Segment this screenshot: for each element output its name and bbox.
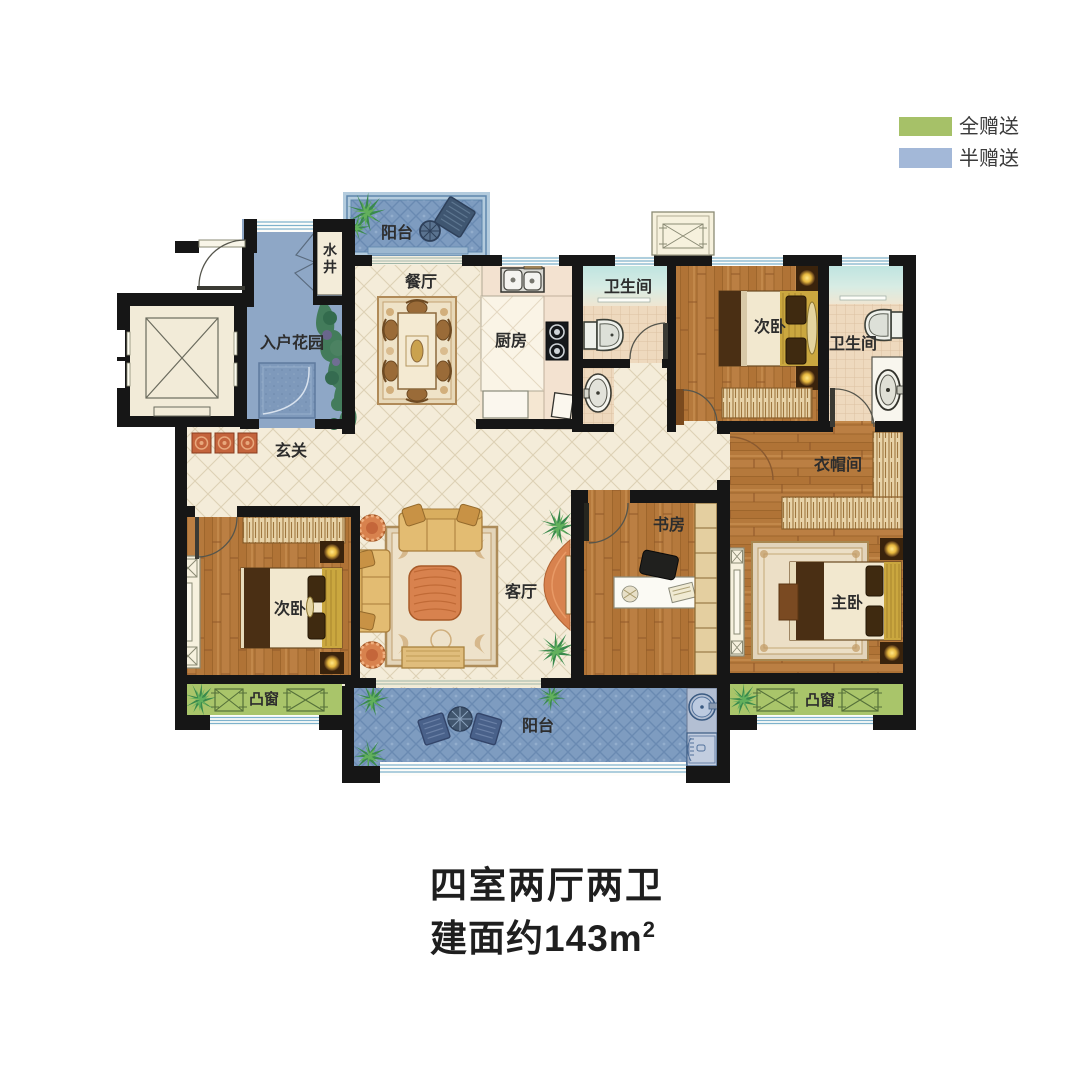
- svg-text:半赠送: 半赠送: [959, 147, 1019, 170]
- svg-text:井: 井: [323, 259, 337, 275]
- svg-text:次卧: 次卧: [274, 599, 306, 618]
- svg-text:书房: 书房: [653, 515, 685, 534]
- svg-text:阳台: 阳台: [522, 716, 554, 735]
- svg-text:凸窗: 凸窗: [805, 691, 835, 709]
- svg-text:客厅: 客厅: [505, 582, 537, 601]
- svg-text:入户花园: 入户花园: [260, 333, 324, 352]
- svg-text:凸窗: 凸窗: [249, 690, 279, 708]
- svg-text:餐厅: 餐厅: [404, 272, 437, 291]
- svg-text:全赠送: 全赠送: [959, 115, 1019, 138]
- svg-text:建面约143m2: 建面约143m2: [430, 917, 656, 959]
- svg-text:厨房: 厨房: [495, 331, 527, 350]
- svg-text:阳台: 阳台: [381, 223, 413, 242]
- svg-text:卫生间: 卫生间: [604, 277, 652, 296]
- svg-text:卫生间: 卫生间: [829, 334, 877, 353]
- svg-text:次卧: 次卧: [754, 317, 786, 336]
- svg-text:玄关: 玄关: [275, 441, 307, 460]
- svg-text:衣帽间: 衣帽间: [814, 455, 862, 474]
- svg-text:主卧: 主卧: [831, 593, 863, 612]
- svg-text:水: 水: [323, 242, 338, 258]
- svg-text:四室两厅两卫: 四室两厅两卫: [430, 864, 664, 906]
